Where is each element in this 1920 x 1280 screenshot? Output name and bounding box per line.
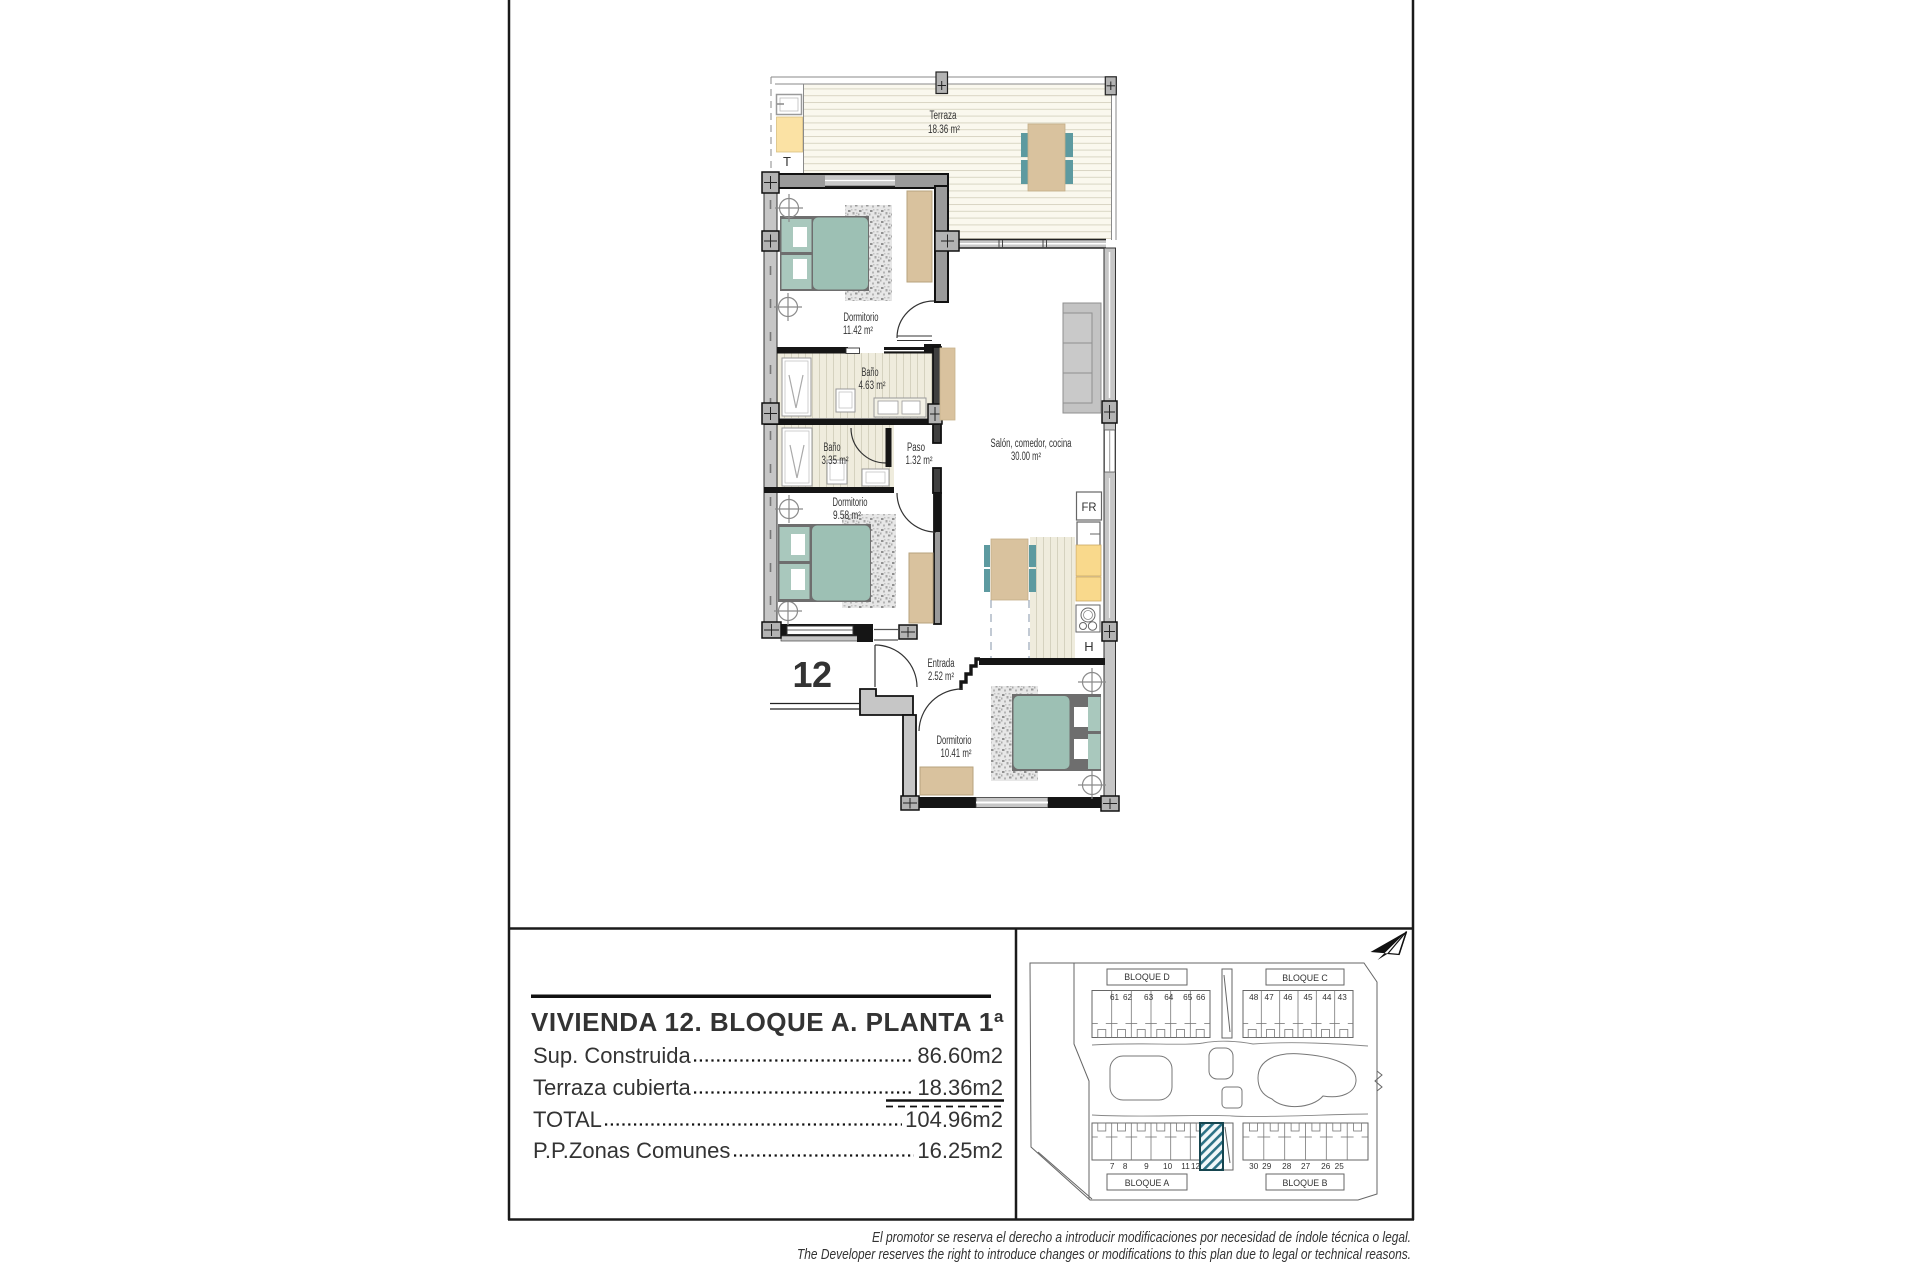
svg-text:61: 61 <box>1110 993 1120 1002</box>
svg-text:VIVIENDA 12. BLOQUE A. PLANTA: VIVIENDA 12. BLOQUE A. PLANTA 1ª <box>531 1007 1004 1037</box>
svg-text:Dormitorio: Dormitorio <box>937 735 972 747</box>
svg-text:44: 44 <box>1322 993 1332 1002</box>
svg-text:P.P.Zonas Comunes: P.P.Zonas Comunes <box>533 1138 730 1163</box>
svg-text:63: 63 <box>1144 993 1154 1002</box>
svg-text:BLOQUE A: BLOQUE A <box>1125 1178 1170 1188</box>
svg-text:11: 11 <box>1181 1162 1190 1171</box>
svg-text:10: 10 <box>1163 1162 1173 1171</box>
svg-text:Baño: Baño <box>862 367 879 379</box>
svg-text:Baño: Baño <box>824 442 841 454</box>
svg-text:H: H <box>1084 639 1093 654</box>
svg-text:12: 12 <box>1191 1162 1201 1171</box>
svg-text:65: 65 <box>1183 993 1193 1002</box>
svg-text:27: 27 <box>1301 1162 1311 1171</box>
svg-text:10.41 m²: 10.41 m² <box>941 748 972 760</box>
svg-text:47: 47 <box>1265 993 1275 1002</box>
svg-text:30: 30 <box>1249 1162 1259 1171</box>
svg-text:104.96m2: 104.96m2 <box>905 1107 1003 1132</box>
svg-text:18.36m2: 18.36m2 <box>917 1075 1003 1100</box>
svg-text:Terraza cubierta: Terraza cubierta <box>533 1075 692 1100</box>
svg-text:66: 66 <box>1196 993 1206 1002</box>
svg-text:28: 28 <box>1282 1162 1292 1171</box>
svg-text:3.35 m²: 3.35 m² <box>822 455 849 467</box>
svg-text:29: 29 <box>1262 1162 1272 1171</box>
svg-text:62: 62 <box>1123 993 1133 1002</box>
svg-text:BLOQUE B: BLOQUE B <box>1283 1178 1328 1188</box>
svg-text:BLOQUE C: BLOQUE C <box>1282 973 1328 983</box>
svg-text:9.58 m²: 9.58 m² <box>833 510 861 522</box>
svg-text:11.42 m²: 11.42 m² <box>843 325 873 337</box>
svg-text:Dormitorio: Dormitorio <box>833 497 868 509</box>
svg-text:Entrada: Entrada <box>928 658 955 670</box>
svg-text:Sup. Construida: Sup. Construida <box>533 1043 692 1068</box>
svg-text:43: 43 <box>1338 993 1348 1002</box>
svg-text:T: T <box>783 154 791 169</box>
svg-text:Terraza: Terraza <box>930 110 957 122</box>
svg-text:46: 46 <box>1283 993 1293 1002</box>
svg-text:BLOQUE D: BLOQUE D <box>1124 972 1169 982</box>
svg-text:12: 12 <box>792 654 831 695</box>
svg-text:8: 8 <box>1123 1162 1128 1171</box>
svg-text:7: 7 <box>1110 1162 1115 1171</box>
svg-text:48: 48 <box>1249 993 1259 1002</box>
svg-text:Dormitorio: Dormitorio <box>844 312 879 324</box>
svg-text:26: 26 <box>1321 1162 1331 1171</box>
svg-text:Salón, comedor, cocina: Salón, comedor, cocina <box>991 438 1072 450</box>
svg-text:25: 25 <box>1335 1162 1345 1171</box>
svg-text:4.63 m²: 4.63 m² <box>859 380 886 392</box>
svg-text:The Developer reserves the rig: The Developer reserves the right to intr… <box>797 1247 1411 1263</box>
svg-text:86.60m2: 86.60m2 <box>917 1043 1003 1068</box>
svg-text:9: 9 <box>1144 1162 1149 1171</box>
svg-text:2.52 m²: 2.52 m² <box>928 671 954 683</box>
svg-text:FR: FR <box>1082 500 1097 514</box>
svg-text:El promotor se reserva el dere: El promotor se reserva el derecho a intr… <box>872 1230 1411 1246</box>
svg-text:1.32 m²: 1.32 m² <box>906 455 933 467</box>
svg-text:30.00 m²: 30.00 m² <box>1011 451 1041 463</box>
svg-text:45: 45 <box>1303 993 1313 1002</box>
svg-text:TOTAL: TOTAL <box>533 1107 602 1132</box>
svg-text:16.25m2: 16.25m2 <box>917 1138 1003 1163</box>
svg-text:18.36 m²: 18.36 m² <box>928 124 960 136</box>
svg-text:Paso: Paso <box>907 442 925 454</box>
svg-text:64: 64 <box>1164 993 1174 1002</box>
